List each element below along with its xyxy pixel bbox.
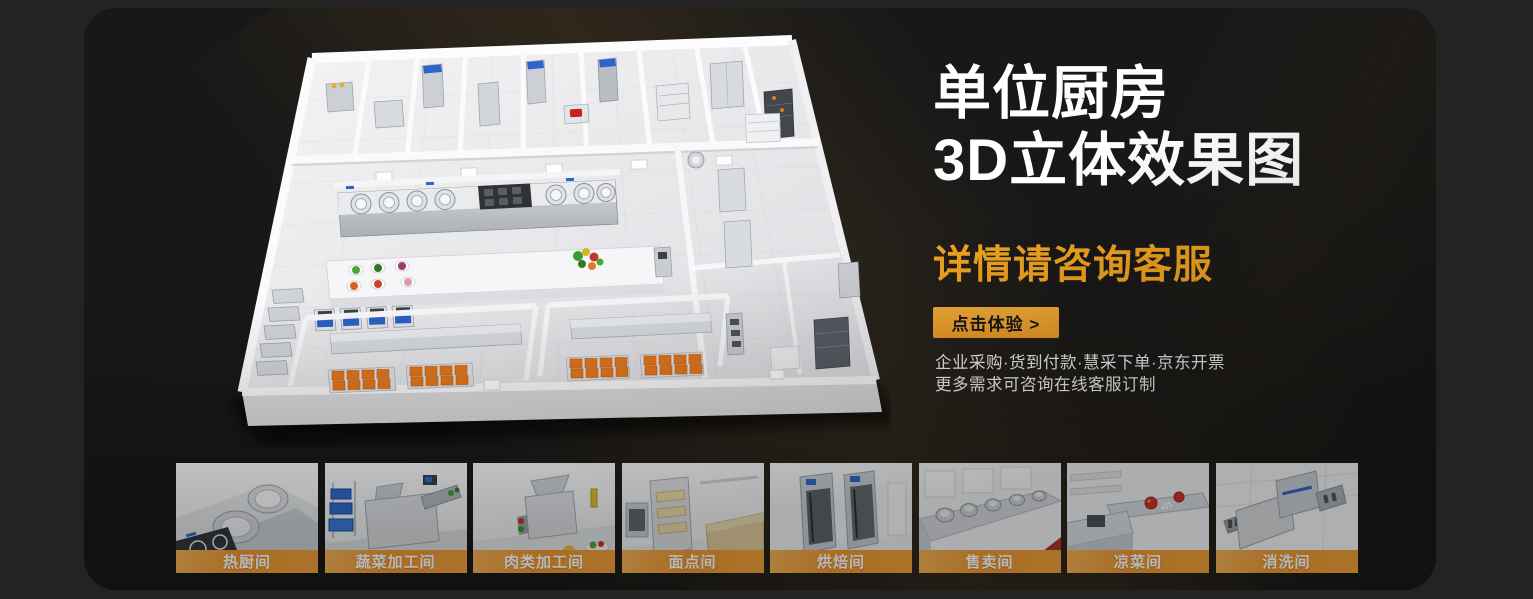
kitchen-3d-floorplan (226, 14, 891, 449)
banner-page: { "hero": { "title_line1": "单位厨房", "titl… (0, 0, 1533, 599)
hero-title-line1: 单位厨房 (933, 60, 1304, 127)
thumbnail-label: 热厨间 (176, 550, 318, 573)
hero-subtitle: 详情请咨询客服 (933, 244, 1213, 288)
thumbnail-label: 烘焙间 (770, 550, 912, 573)
thumbnail-hot-kitchen[interactable]: 热厨间 (176, 463, 318, 573)
room-thumbnails: 热厨间 蔬菜加工间 (176, 463, 1358, 573)
thumbnail-meat-processing[interactable]: 肉类加工间 (473, 463, 615, 573)
thumbnail-serving-room[interactable]: 售卖间 (919, 463, 1061, 573)
thumbnail-washing-room[interactable]: 消洗间 (1216, 463, 1358, 573)
thumbnail-label: 肉类加工间 (473, 550, 615, 573)
thumbnail-label: 蔬菜加工间 (325, 550, 467, 573)
hero-title: 单位厨房 3D立体效果图 (933, 60, 1304, 194)
cta-button[interactable]: 点击体验 > (933, 307, 1059, 338)
thumbnail-baking-room[interactable]: 烘焙间 (770, 463, 912, 573)
hero-description-line1: 企业采购·货到付款·慧采下单·京东开票 (935, 353, 1225, 375)
thumbnail-cold-dish-room[interactable]: 凉菜间 (1067, 463, 1209, 573)
thumbnail-label: 消洗间 (1216, 550, 1358, 573)
thumbnail-label: 凉菜间 (1067, 550, 1209, 573)
thumbnail-label: 售卖间 (919, 550, 1061, 573)
thumbnail-pastry-room[interactable]: 面点间 (622, 463, 764, 573)
hero-description-line2: 更多需求可咨询在线客服订制 (935, 375, 1225, 397)
hero-description: 企业采购·货到付款·慧采下单·京东开票 更多需求可咨询在线客服订制 (935, 353, 1225, 396)
thumbnail-vegetable-processing[interactable]: 蔬菜加工间 (325, 463, 467, 573)
banner-panel: 单位厨房 3D立体效果图 详情请咨询客服 点击体验 > 企业采购·货到付款·慧采… (84, 8, 1436, 590)
hero-title-line2: 3D立体效果图 (933, 127, 1304, 194)
thumbnail-label: 面点间 (622, 550, 764, 573)
